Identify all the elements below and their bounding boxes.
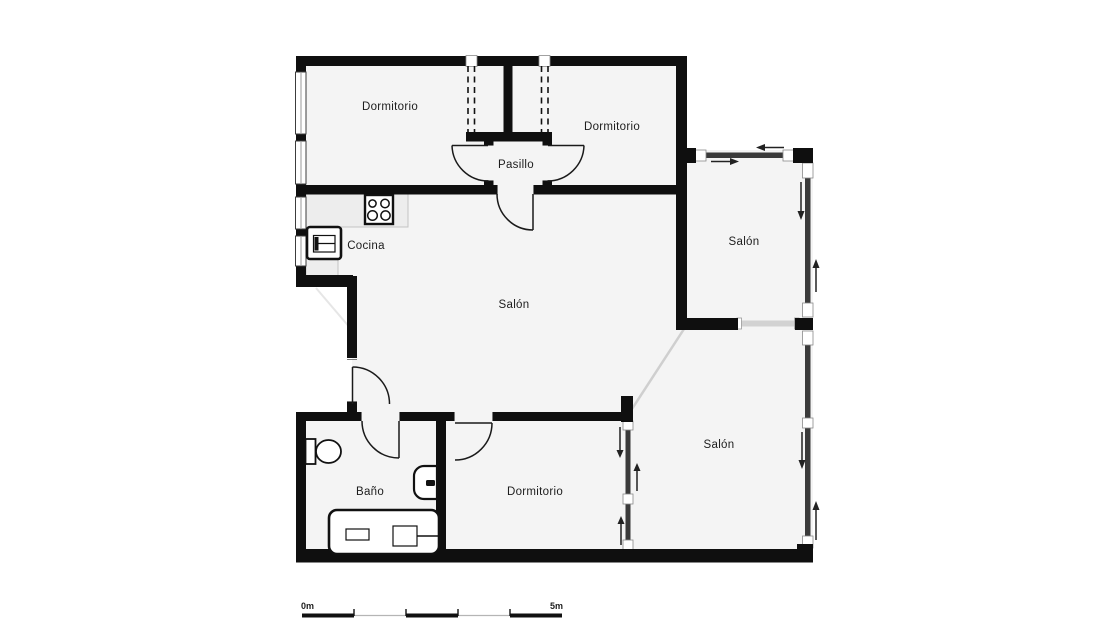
window-mullion xyxy=(623,494,633,504)
floor xyxy=(300,60,687,286)
room-label-hallway: Pasillo xyxy=(498,159,534,171)
glass-wall xyxy=(805,178,811,303)
bathtub-icon xyxy=(329,510,439,554)
room-label-living-center: Salón xyxy=(499,299,530,311)
wall xyxy=(296,275,353,287)
wall xyxy=(543,132,553,145)
room-label-living-top-right: Salón xyxy=(729,236,760,248)
room-label-living-bottom-right: Salón xyxy=(704,439,735,451)
glass-wall xyxy=(626,430,631,494)
window-mullion xyxy=(803,331,814,345)
scale-bar-segment xyxy=(406,614,458,618)
glass-wall xyxy=(626,504,631,540)
wall xyxy=(493,412,633,421)
room-opening-line xyxy=(741,321,795,327)
room-label-bathroom: Baño xyxy=(356,486,384,498)
wall-notch xyxy=(466,56,477,67)
window-mullion xyxy=(695,150,706,161)
oven-icon xyxy=(307,227,341,259)
glass-wall xyxy=(805,345,811,418)
floorplan-canvas: Dormitorio Dormitorio Pasillo Cocina Sal… xyxy=(0,0,1110,626)
window-mullion xyxy=(623,540,633,550)
room-label-bedroom-top-left: Dormitorio xyxy=(362,101,418,113)
sink-icon xyxy=(414,466,437,499)
sliding-arrow-left-icon xyxy=(756,144,784,151)
wall xyxy=(484,181,494,195)
scale-bar xyxy=(302,609,562,618)
wall xyxy=(296,56,687,66)
room-label-bedroom-top-right: Dormitorio xyxy=(584,121,640,133)
floorplan-drawing xyxy=(0,0,1110,626)
room-label-bedroom-bottom: Dormitorio xyxy=(507,486,563,498)
wall xyxy=(676,148,696,163)
glass-wall xyxy=(805,428,811,536)
toilet-icon xyxy=(306,439,342,464)
scale-bar-segment xyxy=(302,614,354,618)
window-mullion xyxy=(623,421,633,430)
room-label-kitchen: Cocina xyxy=(347,240,385,252)
scale-label-start: 0m xyxy=(301,601,314,611)
window-mullion xyxy=(803,303,814,317)
stove-icon xyxy=(365,195,393,224)
wall-notch xyxy=(539,56,550,67)
window-mullion xyxy=(783,150,794,161)
floor-areas xyxy=(300,60,813,552)
wall xyxy=(795,318,813,330)
sliding-arrow-up-icon xyxy=(813,501,820,540)
floor-edge-diagonal xyxy=(316,288,351,329)
wall xyxy=(621,396,633,422)
wall xyxy=(347,276,357,358)
window-mullion xyxy=(803,163,814,178)
wall xyxy=(676,318,738,330)
wall xyxy=(797,544,813,562)
wall xyxy=(296,185,497,195)
wall xyxy=(543,181,553,195)
wall xyxy=(504,66,513,141)
wall xyxy=(676,56,687,330)
scale-label-end: 5m xyxy=(550,601,563,611)
wall xyxy=(466,132,552,142)
wall xyxy=(793,148,813,163)
wall xyxy=(296,412,306,562)
wall xyxy=(484,132,494,145)
wall xyxy=(534,185,687,195)
sliding-arrow-up-icon xyxy=(813,259,820,292)
glass-wall xyxy=(706,153,783,159)
window-mullion xyxy=(803,418,814,428)
scale-bar-segment xyxy=(510,614,562,618)
